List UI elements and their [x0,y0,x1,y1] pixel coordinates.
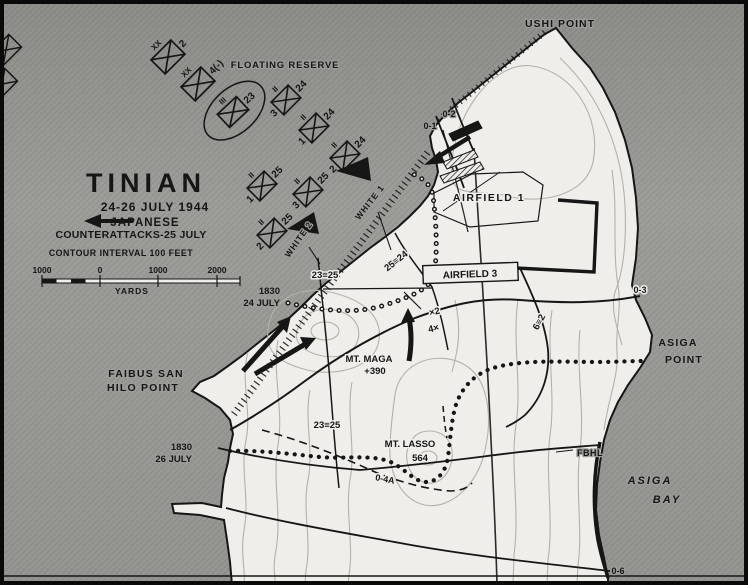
legend-line2: COUNTERATTACKS-25 JULY [55,229,206,241]
label-faibus-1: FAIBUS SAN [108,368,184,380]
label-boundary-23-25-south: 23≡25 [314,420,341,431]
label-mt-lasso: MT. LASSO [385,439,436,450]
label-1830-24jul-time: 1830 [259,286,280,297]
label-1830-24jul-date: 24 JULY [243,298,280,309]
scale-unit: YARDS [115,286,149,296]
label-boundary-23-25-north: 23≡25 [312,270,339,281]
label-asiga-point-1: ASIGA [658,337,697,349]
scale-zero: 0 [98,265,103,275]
contour-note: CONTOUR INTERVAL 100 FEET [49,248,193,258]
map-title: TINIAN [86,168,206,198]
label-mt-maga-elev: +390 [364,366,385,377]
label-airfield-1: AIRFIELD 1 [453,192,525,204]
label-o6: 0-6 [611,566,624,576]
label-o3: 0-3 [633,285,646,295]
map-dates: 24-26 JULY 1944 [101,200,209,214]
tinian-map-svg: XX 2 XX 4(-) III 23 II 24 3 II 24 1 [0,0,748,585]
scale-right: 2000 [208,265,227,275]
label-ushi-point: USHI POINT [525,18,595,30]
label-airfield-3: AIRFIELD 3 [443,269,498,282]
scale-left: 1000 [33,265,52,275]
label-1830-26jul-time: 1830 [171,442,192,453]
label-asiga-point-2: POINT [665,354,703,366]
label-asiga-bay-1: ASIGA [627,475,673,487]
label-1830-26jul-date: 26 JULY [155,454,192,465]
label-mt-lasso-elev: 564 [412,453,429,464]
scale-mid: 1000 [149,265,168,275]
label-o2: 0-2 [442,109,455,119]
tinian-map-page: XX 2 XX 4(-) III 23 II 24 3 II 24 1 [0,0,748,585]
label-floating-reserve: FLOATING RESERVE [231,60,340,71]
label-mt-maga: MT. MAGA [346,354,393,365]
label-fbhl: FBHL [577,448,603,458]
legend-line1: JAPANESE [110,217,179,229]
label-asiga-bay-2: BAY [653,494,681,506]
label-o1: 0-1 [423,121,436,131]
airfield-3-box: AIRFIELD 3 [423,262,519,283]
label-faibus-2: HILO POINT [107,382,179,394]
